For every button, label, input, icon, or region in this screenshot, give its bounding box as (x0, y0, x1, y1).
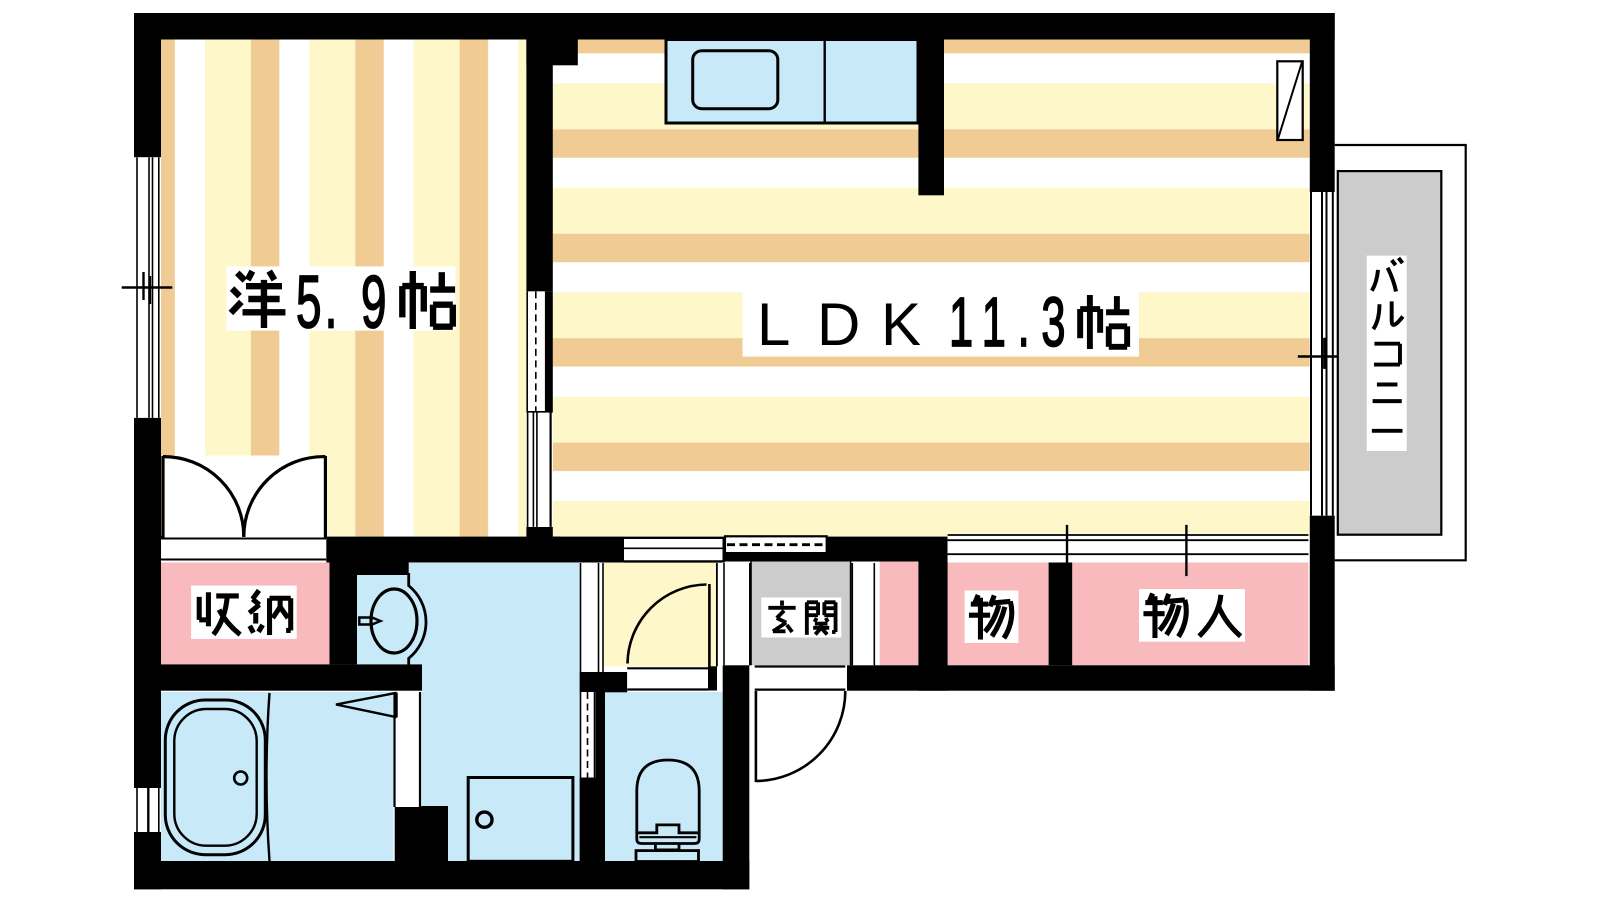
svg-text:5.: 5. (296, 261, 340, 344)
svg-text:L: L (757, 291, 790, 358)
svg-text:11.3: 11.3 (949, 283, 1077, 361)
svg-text:9: 9 (361, 261, 387, 344)
svg-text:K: K (881, 291, 921, 358)
svg-text:D: D (817, 291, 860, 358)
